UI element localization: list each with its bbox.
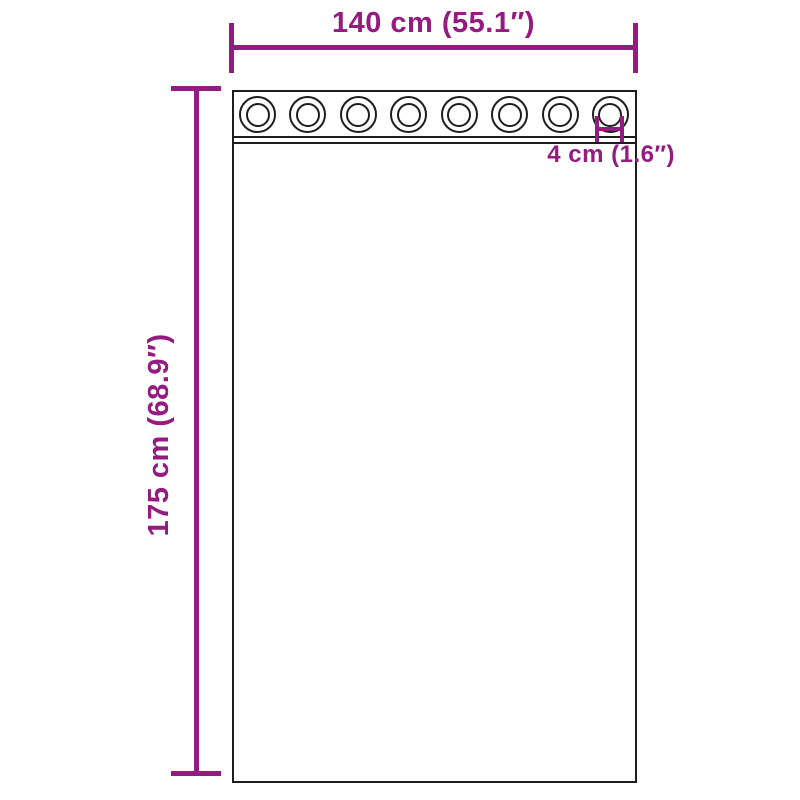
grommet xyxy=(441,96,478,133)
grommet-row xyxy=(239,96,629,133)
grommet-hole xyxy=(346,103,370,127)
grommet-hole xyxy=(246,103,270,127)
grommet xyxy=(390,96,427,133)
grommet-dimension-line xyxy=(595,127,624,131)
height-dimension-label: 175 cm (68.9″) xyxy=(139,235,179,635)
curtain-panel xyxy=(232,90,637,783)
grommet xyxy=(239,96,276,133)
grommet-hole xyxy=(598,103,622,127)
width-dimension-line xyxy=(229,45,638,50)
height-dimension-cap-bottom xyxy=(171,771,221,776)
grommet xyxy=(340,96,377,133)
grommet-hole xyxy=(447,103,471,127)
grommet-hole xyxy=(548,103,572,127)
height-dimension-line xyxy=(194,86,199,776)
width-dimension-label: 140 cm (55.1″) xyxy=(230,7,637,40)
curtain-dimension-diagram: 140 cm (55.1″) 175 cm (68.9″) 4 cm (1.6″… xyxy=(0,0,800,800)
grommet xyxy=(491,96,528,133)
grommet xyxy=(289,96,326,133)
grommet-hole xyxy=(296,103,320,127)
height-dimension-cap-top xyxy=(171,86,221,91)
grommet-hole xyxy=(498,103,522,127)
grommet-hole xyxy=(397,103,421,127)
header-stitch-line-top xyxy=(234,136,635,138)
grommet-dimension-label: 4 cm (1.6″) xyxy=(480,141,675,169)
grommet xyxy=(542,96,579,133)
